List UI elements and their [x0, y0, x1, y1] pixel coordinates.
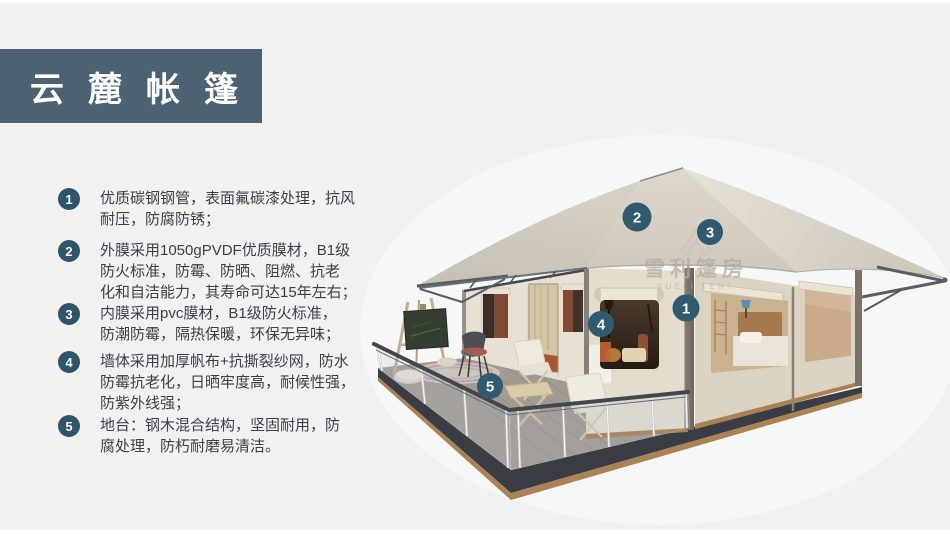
- diagram-marker-number: 1: [682, 301, 690, 318]
- wall-post: [855, 270, 862, 386]
- watermark-en-text: XUELI TENT: [657, 282, 735, 291]
- right-window-interior: [711, 293, 788, 373]
- diagram-marker-number: 5: [486, 379, 494, 396]
- diagram-marker-number: 2: [633, 210, 641, 227]
- pole-end-cap: [943, 278, 948, 283]
- pillow: [740, 332, 762, 343]
- diagram-marker-number: 3: [706, 225, 714, 242]
- floor-pouf: [437, 358, 457, 367]
- window-awning-roll: [561, 284, 585, 291]
- watermark-cn-text: 雪利篷房: [644, 257, 748, 281]
- porch-window-left: [483, 294, 508, 338]
- easel-painting: [404, 309, 449, 350]
- window-awning-roll: [595, 288, 663, 301]
- porch-window-right: [563, 290, 583, 332]
- cushion: [622, 348, 646, 362]
- front-window-interior: [600, 300, 659, 369]
- product-slide: 云麓帐篷 1 优质碳钢钢管，表面氟碳漆处理，抗风 耐压，防腐防锈； 2 外膜采用…: [0, 0, 950, 534]
- tent-illustration: 雪利篷房 XUELI TENT 12345: [0, 0, 950, 534]
- diagram-marker-number: 4: [597, 317, 606, 334]
